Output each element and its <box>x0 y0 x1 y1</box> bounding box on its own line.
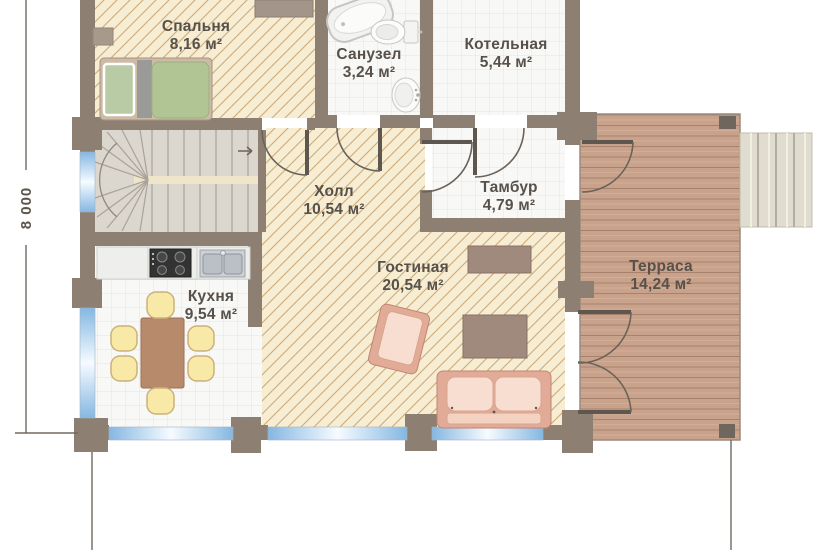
room-area-bathroom: 3,24 м² <box>343 64 396 81</box>
window-icon <box>109 427 233 440</box>
nightstand-icon <box>93 28 113 45</box>
room-label-vestibule: Тамбур <box>480 179 537 196</box>
room-area-boiler-room: 5,44 м² <box>480 54 533 71</box>
kitchen-sink-icon <box>200 250 245 277</box>
dining-table-icon <box>141 318 184 388</box>
room-label-kitchen: Кухня <box>188 288 234 305</box>
room-label-hall: Холл <box>314 183 354 200</box>
room-area-living-room: 20,54 м² <box>382 277 443 294</box>
room-area-bedroom: 8,16 м² <box>170 36 223 53</box>
toilet-icon <box>371 20 423 44</box>
floor-plan-page: Спальня 8,16 м² Санузел 3,24 м² Котельна… <box>0 0 825 550</box>
terrace-post-icon <box>719 424 735 438</box>
stove-icon <box>150 249 191 277</box>
room-label-living-room: Гостиная <box>377 259 449 276</box>
room-label-bedroom: Спальня <box>162 18 230 35</box>
entrance-steps-icon <box>740 133 812 227</box>
room-area-kitchen: 9,54 м² <box>185 306 238 323</box>
sofa-icon <box>437 371 551 428</box>
dimension-label: 8 000 <box>18 187 35 230</box>
window-icon <box>80 308 95 418</box>
room-area-hall: 10,54 м² <box>303 201 364 218</box>
bathroom-sink-icon <box>392 78 420 112</box>
bed-icon <box>100 58 212 120</box>
terrace-post-icon <box>719 116 736 129</box>
wardrobe-icon <box>255 0 313 17</box>
room-label-terrace: Терраса <box>629 258 693 275</box>
room-area-vestibule: 4,79 м² <box>483 197 536 214</box>
window-icon <box>80 152 95 212</box>
tv-stand-icon <box>468 246 531 273</box>
coffee-table-icon <box>463 315 527 358</box>
room-area-terrace: 14,24 м² <box>630 276 691 293</box>
window-icon <box>268 427 407 440</box>
floor-plan-svg: Спальня 8,16 м² Санузел 3,24 м² Котельна… <box>0 0 825 550</box>
room-label-bathroom: Санузел <box>336 46 401 63</box>
room-label-boiler-room: Котельная <box>465 36 548 53</box>
window-icon <box>432 427 543 440</box>
stairs-icon <box>95 130 258 232</box>
